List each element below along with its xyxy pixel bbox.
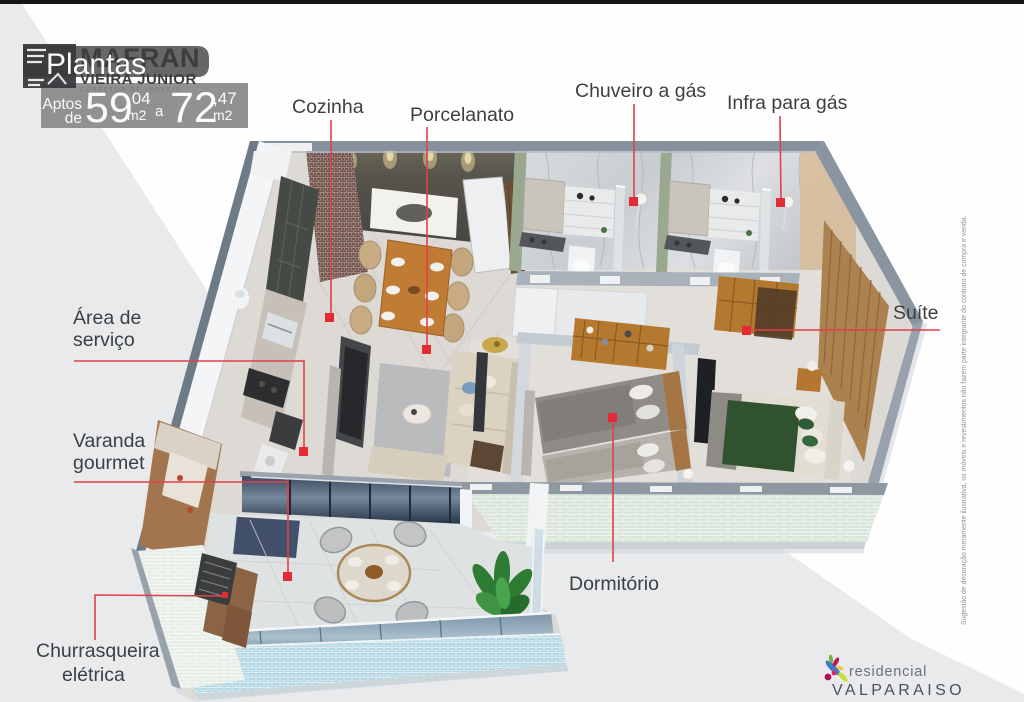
svg-text:Dormitório: Dormitório [569,573,659,595]
svg-text:Área de: Área de [73,306,141,329]
svg-text:Plantas: Plantas [46,48,146,81]
svg-text:gourmet: gourmet [73,452,145,474]
svg-text:59: 59 [85,84,133,132]
svg-text:Porcelanato: Porcelanato [410,104,514,126]
svg-text:Suíte: Suíte [893,302,939,324]
svg-text:serviço: serviço [73,329,135,351]
svg-text:,04: ,04 [127,89,151,108]
svg-text:VALPARAISO: VALPARAISO [832,682,965,699]
svg-text:residencial: residencial [849,664,927,680]
svg-text:Chuveiro a gás: Chuveiro a gás [575,80,706,102]
svg-text:a: a [155,103,164,120]
svg-text:m2: m2 [127,107,147,123]
svg-text:elétrica: elétrica [62,664,125,686]
svg-text:m2: m2 [213,107,233,123]
svg-text:Churrasqueira: Churrasqueira [36,640,160,662]
svg-text:,47: ,47 [213,89,237,108]
svg-text:72: 72 [170,84,218,132]
svg-text:Cozinha: Cozinha [292,96,364,118]
svg-text:Varanda: Varanda [73,430,145,452]
svg-text:Sugestão de decoração merament: Sugestão de decoração meramente ilustrat… [961,215,968,625]
svg-text:de: de [65,110,82,127]
svg-text:Infra para gás: Infra para gás [727,92,848,114]
